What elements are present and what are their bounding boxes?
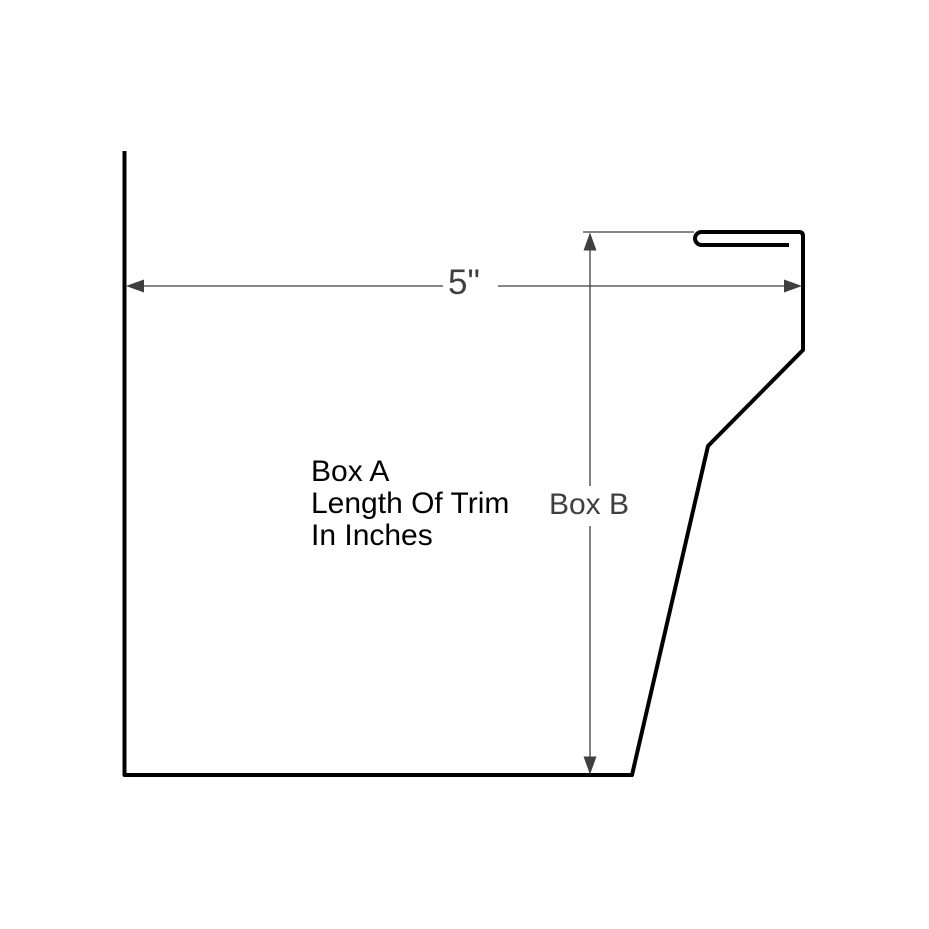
width-dim-arrow-left-icon	[126, 280, 144, 293]
note-line-in-inches: In Inches	[311, 520, 509, 552]
height-dimension-label: Box B	[549, 488, 629, 522]
height-dim-arrow-bottom-icon	[584, 757, 597, 775]
height-dim-arrow-top-icon	[584, 233, 597, 251]
note-line-length-of-trim: Length Of Trim	[311, 488, 509, 520]
note-text: Box A Length Of Trim In Inches	[311, 456, 509, 552]
width-dim-arrow-right-icon	[784, 280, 802, 293]
note-line-box-a: Box A	[311, 456, 509, 488]
width-dimension-label: 5"	[444, 265, 484, 300]
diagram-canvas: Box A Length Of Trim In Inches 5" Box B	[0, 0, 929, 929]
